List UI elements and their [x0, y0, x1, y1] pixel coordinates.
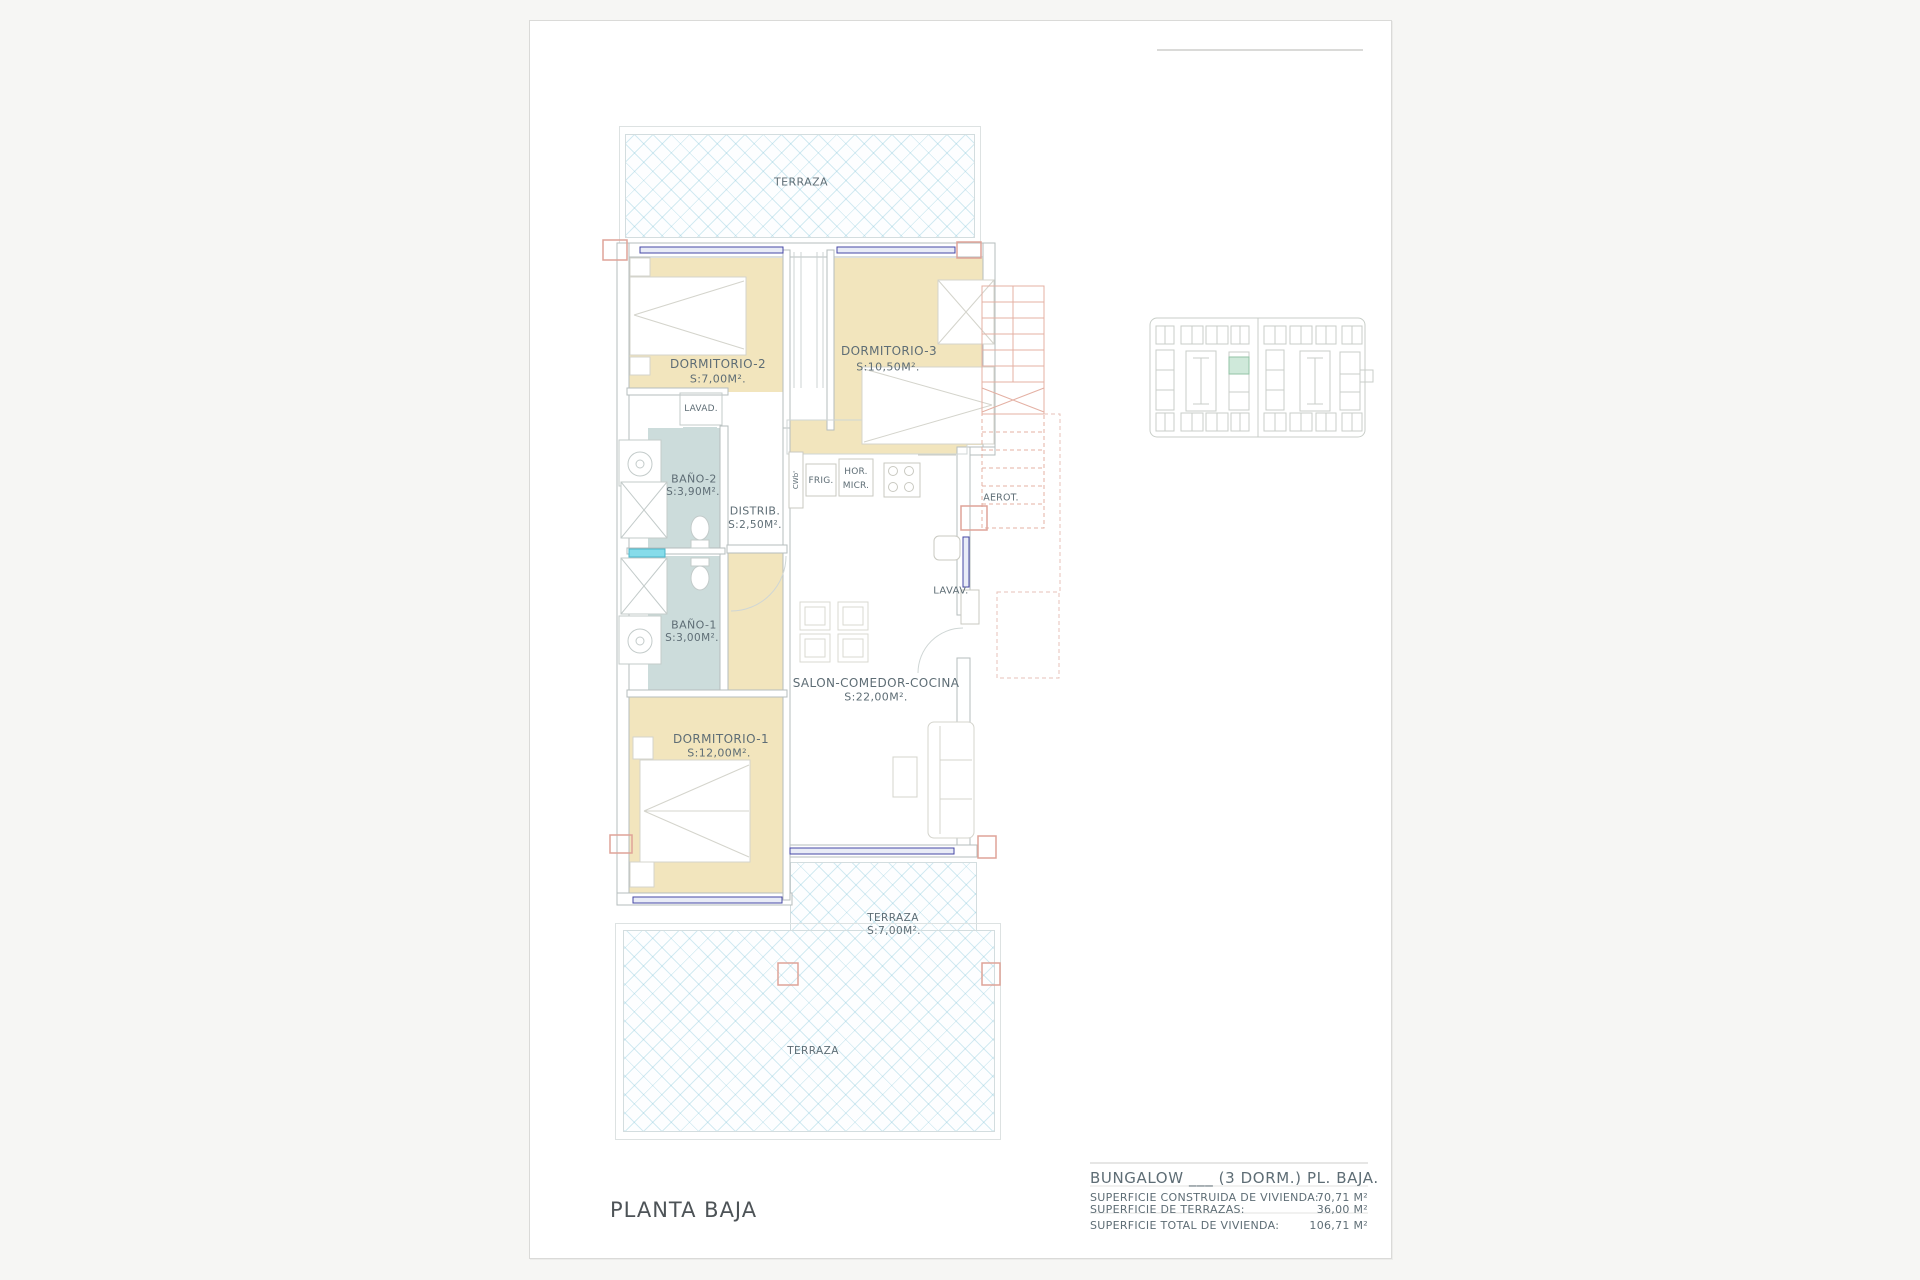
bedroom1-floor — [628, 697, 787, 897]
bedroom2-area: S:7,00M². — [690, 373, 746, 386]
bedroom3-area: S:10,50M². — [856, 361, 920, 374]
terrace-salon-area: S:7,00M². — [867, 925, 921, 937]
terrace-top-label: TERRAZA — [774, 176, 828, 189]
terrace-area-value: 36,00 M² — [1250, 1203, 1368, 1216]
hall-area: S:2,50M². — [728, 519, 782, 531]
title-block-title: BUNGALOW ___ (3 DORM.) PL. BAJA. — [1090, 1169, 1379, 1187]
fridge-label: FRIG. — [809, 476, 834, 486]
aerothermal-label: AEROT. — [983, 493, 1018, 504]
microwave-label: MICR. — [843, 481, 870, 491]
hall-label: DISTRIB. — [730, 505, 781, 518]
living-room-area: S:22,00M². — [844, 691, 908, 704]
floor-title: PLANTA BAJA — [610, 1198, 757, 1222]
terrace-bottom-label: TERRAZA — [787, 1045, 839, 1057]
cupboard-label: CWb' — [792, 471, 800, 489]
bedroom1-wardrobe-floor — [727, 553, 787, 699]
terrace-bottom-outline — [615, 923, 1001, 1140]
bath2-label: BAÑO-2 — [671, 473, 717, 486]
total-area-value: 106,71 M² — [1250, 1219, 1368, 1232]
bedroom2-label: DORMITORIO-2 — [670, 357, 766, 371]
oven-label: HOR. — [844, 467, 867, 477]
bedroom1-label: DORMITORIO-1 — [673, 732, 769, 746]
drawing-canvas: TERRAZA DORMITORIO-2 S:7,00M². DORMITORI… — [0, 0, 1920, 1280]
bath2-area: S:3,90M². — [666, 486, 720, 498]
bath1-area: S:3,00M². — [665, 632, 719, 644]
terrace-area-label: SUPERFICIE DE TERRAZAS: — [1090, 1203, 1245, 1216]
laundry-label: LAVAD. — [684, 404, 718, 414]
kitchen-counter-band — [787, 420, 967, 454]
terrace-salon-label: TERRAZA — [867, 912, 919, 924]
bedroom3-label: DORMITORIO-3 — [841, 344, 937, 358]
dishwasher-label: LAVAV. — [933, 586, 969, 597]
bedroom1-area: S:12,00M². — [687, 747, 751, 760]
living-room-label: SALON-COMEDOR-COCINA — [793, 676, 960, 690]
bath1-label: BAÑO-1 — [671, 619, 717, 632]
